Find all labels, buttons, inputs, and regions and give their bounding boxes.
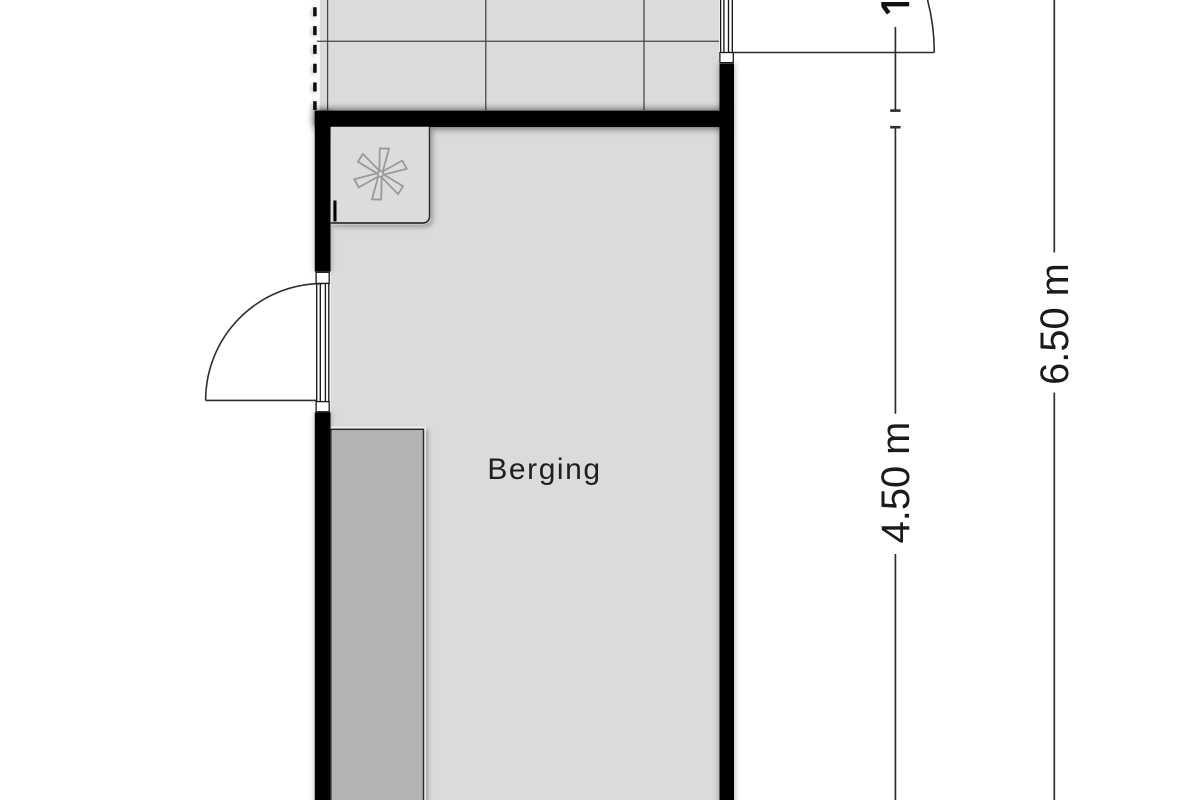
svg-text:6.50 m: 6.50 m xyxy=(1033,263,1077,385)
svg-text:Berging: Berging xyxy=(487,453,601,486)
svg-text:4.50 m: 4.50 m xyxy=(874,422,918,544)
